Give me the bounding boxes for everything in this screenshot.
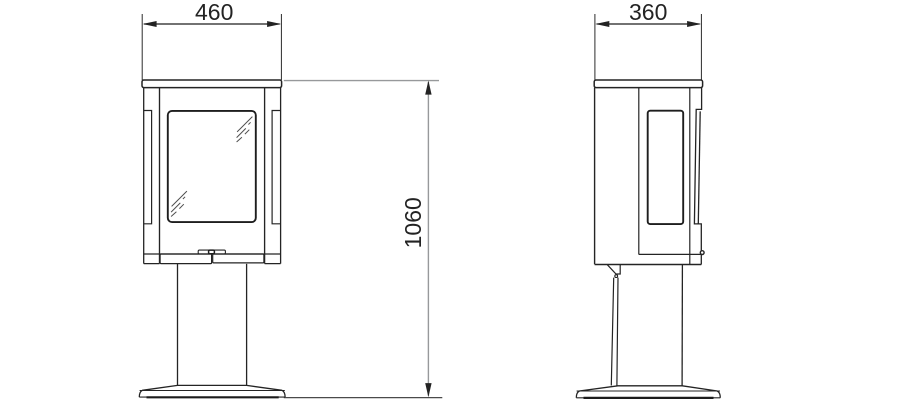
svg-text:460: 460 [195,0,233,25]
svg-text:360: 360 [629,0,667,25]
svg-text:1060: 1060 [400,197,426,248]
